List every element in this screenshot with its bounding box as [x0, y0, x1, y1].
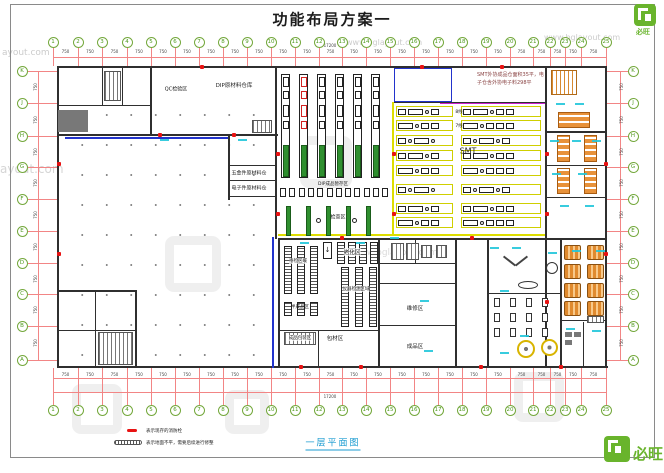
fire-hydrant-mark [276, 152, 280, 156]
fire-hydrant-mark [57, 252, 61, 256]
grid-stem-left [28, 103, 57, 104]
zone-label-dip-line: DIP成品暂存区 [318, 181, 348, 187]
dip-machine-box [337, 105, 343, 117]
fire-hydrant-mark [470, 236, 474, 240]
grid-col-bubble-bottom: 18 [457, 405, 468, 416]
stairs [104, 71, 121, 101]
smt-machine [502, 138, 510, 144]
grid-row-bubble-left: D [17, 258, 28, 269]
dim-label-top: 750 [301, 50, 313, 54]
grid-col-bubble-bottom: 12 [314, 405, 325, 416]
dim-label-top: 750 [84, 50, 96, 54]
grid-col-bubble-bottom: 3 [97, 405, 108, 416]
dim-label-bottom: 750 [372, 373, 384, 377]
grid-row-bubble-right: G [628, 162, 639, 173]
smt-line-row [396, 150, 453, 161]
test-fixture-green [366, 206, 371, 236]
storage-rack [310, 246, 318, 294]
dim-line-left [38, 71, 39, 360]
canteen-table [587, 245, 604, 260]
smt-machine [490, 154, 494, 158]
dim-label-bottom: 750 [253, 373, 265, 377]
oval-table [518, 281, 538, 289]
dip-machine-box [301, 105, 307, 117]
wall [278, 238, 607, 240]
cyan-room-label [560, 205, 569, 207]
training-desk [494, 328, 500, 337]
grid-stem-left [28, 231, 57, 232]
grid-col-bubble-top: 6 [170, 37, 181, 48]
dim-label-top: 750 [60, 50, 72, 54]
stairs [551, 70, 577, 95]
wall [487, 293, 560, 294]
fire-hydrant-mark [276, 212, 280, 216]
cyan-room-label [550, 140, 559, 142]
smt-machine [502, 187, 510, 193]
grid-col-bubble-top: 11 [290, 37, 301, 48]
fixture [565, 340, 572, 345]
dim-label-bottom: 750 [133, 373, 145, 377]
dim-label-top: 750 [181, 50, 193, 54]
grid-col-bubble-top: 8 [218, 37, 229, 48]
dip-conveyor-green [373, 145, 379, 177]
grid-col-bubble-bottom: 2 [73, 405, 84, 416]
grid-col-bubble-top: 4 [122, 37, 133, 48]
wall [57, 66, 607, 68]
dim-label-top: 750 [253, 50, 265, 54]
dim-label-bottom: 750 [420, 373, 432, 377]
smt-line-row [461, 165, 541, 176]
dim-label-top: 750 [396, 50, 408, 54]
zone-label-aging: 老化区 [344, 248, 361, 256]
dip-production-line [353, 74, 362, 178]
grid-col-bubble-top: 7 [194, 37, 205, 48]
fan-icon [541, 339, 558, 356]
grid-row-bubble-left: E [17, 226, 28, 237]
grid-col-bubble-bottom: 14 [361, 405, 372, 416]
smt-machine [398, 220, 413, 226]
dim-label-left: 750 [34, 209, 38, 221]
storage-rack [297, 246, 305, 294]
dim-label-right: 750 [620, 241, 624, 253]
smt-machine [414, 138, 429, 144]
blue-line-horizontal [65, 137, 228, 139]
grid-stem-left [28, 199, 57, 200]
dim-label-top: 750 [277, 50, 289, 54]
dip-machine-box [301, 77, 307, 87]
grid-stem-bottom [438, 368, 439, 405]
grid-stem-bottom [486, 368, 487, 405]
dip-machine-box [337, 77, 343, 87]
zone-label-inspection: 检查区 [330, 214, 345, 221]
smt-machine [431, 168, 439, 174]
wall [278, 238, 280, 368]
fixture-circle [352, 218, 357, 223]
fire-hydrant-mark [200, 65, 204, 69]
dim-label-top: 750 [325, 50, 337, 54]
grid-row-bubble-right: A [628, 355, 639, 366]
dip-machine-box [283, 121, 289, 129]
cyan-room-label [420, 300, 429, 302]
wall [378, 263, 455, 264]
grid-row-bubble-left: J [17, 98, 28, 109]
dim-label-left: 750 [34, 146, 38, 158]
zone-label-smt-line7: 7线 [455, 123, 462, 129]
dim-label-left: 750 [34, 337, 38, 349]
wall [545, 197, 606, 198]
smt-machine [431, 109, 439, 115]
dip-production-line [299, 74, 308, 178]
plan-caption: 一层平面图 [305, 436, 360, 449]
wall [228, 134, 230, 200]
cyan-room-label [575, 103, 584, 105]
smt-machine [398, 187, 406, 193]
fire-hydrant-mark [299, 365, 303, 369]
smt-machine [463, 138, 471, 144]
dim-label-left: 750 [34, 273, 38, 285]
equipment-bench [421, 245, 432, 258]
dim-label-bottom: 750 [567, 373, 579, 377]
stairs [98, 332, 133, 365]
cyan-room-label [500, 290, 509, 292]
grid-col-bubble-top: 2 [73, 37, 84, 48]
fire-hydrant-mark [559, 365, 563, 369]
test-fixture-green [346, 206, 351, 236]
grid-row-bubble-left: K [17, 66, 28, 77]
grid-stem-bottom [462, 368, 463, 405]
grid-col-bubble-top: 22 [545, 37, 556, 48]
smt-machine [506, 123, 514, 129]
smt-machine [486, 168, 494, 174]
smt-machine [463, 187, 471, 193]
smt-line-row [396, 184, 453, 195]
cyan-room-label [552, 173, 561, 175]
grid-row-bubble-left: A [17, 355, 28, 366]
grid-col-bubble-top: 25 [601, 37, 612, 48]
grid-col-bubble-top: 19 [481, 37, 492, 48]
training-desk [542, 313, 548, 322]
smt-machine [431, 153, 439, 159]
grid-stem-bottom [199, 368, 200, 405]
grid-stem-left [28, 136, 57, 137]
grid-stem-bottom [390, 368, 391, 405]
smt-machine [425, 207, 429, 211]
grid-col-bubble-top: 17 [433, 37, 444, 48]
smt-machine [473, 206, 488, 212]
cyan-room-label [390, 237, 399, 239]
dim-label-bottom: 750 [301, 373, 313, 377]
grid-stem-left [28, 360, 57, 361]
dim-label-top: 750 [444, 50, 456, 54]
smt-machine [431, 206, 439, 212]
dip-conveyor-green [283, 145, 289, 177]
zone-label-electronic-warehouse: 电子件原材料仓 [231, 185, 266, 192]
wall [545, 165, 606, 166]
storage-rack [284, 246, 292, 294]
aging-rack [370, 242, 378, 264]
wall [605, 66, 607, 368]
canteen-table [587, 301, 604, 316]
serving-table [587, 316, 604, 323]
grid-col-bubble-bottom: 20 [505, 405, 516, 416]
cyan-room-label [300, 242, 309, 244]
wall [545, 66, 547, 368]
grid-col-bubble-top: 1 [48, 37, 59, 48]
dip-machine-box [319, 105, 325, 117]
smt-line-row [461, 135, 541, 146]
grid-stem-bottom [151, 368, 152, 405]
cyan-room-label [556, 103, 565, 105]
dim-label-left: 750 [34, 114, 38, 126]
smt-note: SMT外协成品仓面积35平，电子仓含外协电子料298平 [477, 71, 547, 87]
smt-machine [408, 139, 412, 143]
wall [228, 180, 276, 181]
dim-label-top: 750 [588, 50, 600, 54]
zone-label-hardware-warehouse: 五金件原材料仓 [231, 170, 266, 177]
dip-production-line [317, 74, 326, 178]
grid-col-bubble-bottom: 8 [218, 405, 229, 416]
smt-line-row [396, 135, 453, 146]
grid-col-bubble-bottom: 21 [528, 405, 539, 416]
dim-label-bottom: 750 [109, 373, 121, 377]
grid-col-bubble-top: 12 [314, 37, 325, 48]
test-fixture-green [326, 206, 331, 236]
grid-row-bubble-left: C [17, 289, 28, 300]
dim-label-bottom: 750 [536, 373, 548, 377]
grid-col-bubble-top: 15 [385, 37, 396, 48]
smt-machine [415, 124, 419, 128]
dip-machine-box [373, 77, 379, 87]
dim-label-right: 750 [620, 273, 624, 285]
grid-col-bubble-bottom: 6 [170, 405, 181, 416]
grid-stem-bottom [53, 368, 54, 405]
fire-hydrant-mark [392, 212, 396, 216]
smt-machine [490, 110, 494, 114]
dim-label-right: 750 [620, 81, 624, 93]
smt-machine [408, 206, 423, 212]
dim-label-top: 750 [552, 50, 564, 54]
smt-line-row [461, 106, 541, 117]
zone-label-pending: 待检区域 [289, 258, 307, 264]
smt-machine [415, 221, 419, 225]
grid-stem-bottom [295, 368, 296, 405]
uneven-floor-legend-icon [114, 440, 142, 445]
canteen-table [587, 283, 604, 298]
dim-label-bottom: 750 [396, 373, 408, 377]
canteen-table [564, 264, 581, 279]
smt-machine [425, 110, 429, 114]
smt-machine [414, 187, 429, 193]
cyan-room-label [578, 173, 587, 175]
fixture [565, 332, 572, 337]
grid-stem-top [606, 47, 607, 66]
smt-machine [398, 153, 406, 159]
wall [102, 66, 103, 106]
grid-stem-bottom [78, 368, 79, 405]
grid-stem-bottom [175, 368, 176, 405]
wall [455, 238, 457, 368]
magenta-line [440, 103, 545, 104]
smt-machine [473, 188, 477, 192]
grid-col-bubble-top: 21 [528, 37, 539, 48]
smt-machine [473, 109, 488, 115]
equipment-bench [436, 245, 447, 258]
grid-stem-bottom [102, 368, 103, 405]
smt-machine [463, 206, 471, 212]
smt-machine [479, 187, 494, 193]
grid-col-bubble-bottom: 7 [194, 405, 205, 416]
smt-machine [463, 220, 478, 226]
dip-machine-box [319, 121, 325, 129]
cyan-room-label [356, 242, 365, 244]
smt-machine [398, 109, 406, 115]
grid-stem-bottom [342, 368, 343, 405]
cyan-room-label [520, 335, 529, 337]
smt-machine [486, 123, 494, 129]
smt-machine [496, 139, 500, 143]
grid-col-bubble-bottom: 25 [601, 405, 612, 416]
dim-label-top: 750 [133, 50, 145, 54]
dim-label-bottom: 750 [325, 373, 337, 377]
grid-col-bubble-top: 16 [409, 37, 420, 48]
grid-row-bubble-right: K [628, 66, 639, 77]
dim-label-top: 750 [468, 50, 480, 54]
grid-stem-bottom [565, 368, 566, 405]
wall [560, 238, 562, 368]
wall [135, 290, 137, 368]
dim-label-bottom: 750 [492, 373, 504, 377]
dip-machine-box [301, 121, 307, 129]
production-boundary-yellow-horizontal [278, 234, 545, 236]
smt-machine [506, 206, 514, 212]
wall [95, 290, 96, 368]
smt-machine [506, 168, 514, 174]
smt-machine [421, 123, 429, 129]
wall [122, 66, 123, 106]
wall [278, 330, 378, 331]
grid-col-bubble-top: 13 [337, 37, 348, 48]
zone-label-repair: 维修区 [407, 304, 424, 312]
zone-label-packing-material: 包材区 [327, 334, 344, 342]
training-desk [542, 328, 548, 337]
dim-label-bottom: 750 [516, 373, 528, 377]
grid-col-bubble-top: 20 [505, 37, 516, 48]
grid-col-bubble-bottom: 23 [560, 405, 571, 416]
smt-machine [425, 154, 429, 158]
smt-line-row [396, 217, 453, 228]
grid-col-bubble-bottom: 19 [481, 405, 492, 416]
legend-item-uneven-floor: 表示地面不平，需要后续进行修整 [146, 440, 214, 446]
grid-row-bubble-right: D [628, 258, 639, 269]
dim-label-bottom: 750 [588, 373, 600, 377]
smt-line-row [461, 217, 541, 228]
dip-machine-box [355, 91, 361, 99]
dim-label-bottom: 750 [277, 373, 289, 377]
grid-row-bubble-right: B [628, 321, 639, 332]
dip-machine-box [355, 105, 361, 117]
training-desk [494, 313, 500, 322]
smt-machine [408, 109, 423, 115]
dim-label-top: 750 [157, 50, 169, 54]
smt-line-row [396, 203, 453, 214]
fire-hydrant-mark [604, 252, 608, 256]
dim-label-right: 750 [620, 114, 624, 126]
grid-stem-bottom [271, 368, 272, 405]
dip-conveyor-green [319, 145, 325, 177]
smt-machine [490, 207, 494, 211]
smt-machine [480, 169, 484, 173]
cyan-room-label [238, 139, 247, 141]
training-desk [510, 313, 516, 322]
smt-line-row [396, 106, 453, 117]
canteen-table [564, 301, 581, 316]
test-fixture-green [286, 206, 291, 236]
fire-hydrant-legend-icon [127, 429, 137, 432]
smt-line-row [461, 203, 541, 214]
grid-row-bubble-right: J [628, 98, 639, 109]
wall [378, 283, 455, 284]
wall [57, 290, 137, 292]
grid-stem-bottom [414, 368, 415, 405]
grid-row-bubble-left: F [17, 194, 28, 205]
smt-machine [506, 153, 514, 159]
dip-machine-box [301, 91, 307, 99]
dim-label-right: 750 [620, 337, 624, 349]
smt-machine [480, 124, 484, 128]
dip-conveyor-green [301, 145, 307, 177]
brand-name: 必旺 [636, 27, 650, 37]
wall [57, 366, 608, 368]
dim-label-right: 750 [620, 304, 624, 316]
smt-machine [496, 168, 504, 174]
smt-machine [463, 168, 478, 174]
dip-conveyor-green [337, 145, 343, 177]
wall [57, 330, 137, 331]
smt-machine [421, 220, 429, 226]
dim-line-top [53, 57, 606, 58]
dim-line-bottom [53, 378, 606, 379]
grid-row-bubble-right: C [628, 289, 639, 300]
fire-hydrant-mark [604, 162, 608, 166]
dip-conveyor-green [355, 145, 361, 177]
storage-rack [355, 267, 363, 327]
grid-row-bubble-left: H [17, 131, 28, 142]
cyan-room-label [572, 250, 581, 252]
grid-stem-bottom [319, 368, 320, 405]
wall [57, 105, 151, 106]
grid-col-bubble-top: 3 [97, 37, 108, 48]
dim-label-bottom: 750 [205, 373, 217, 377]
dip-machine-box [319, 91, 325, 99]
canteen-table [564, 283, 581, 298]
dip-machine-box [373, 121, 379, 129]
wall [545, 131, 606, 133]
test-fixture-green [306, 206, 311, 236]
smt-machine [431, 220, 439, 226]
grid-row-bubble-right: H [628, 131, 639, 142]
smt-machine [496, 123, 504, 129]
cyan-room-label [585, 205, 594, 207]
dim-label-left: 750 [34, 241, 38, 253]
wall [228, 196, 276, 197]
fire-hydrant-mark [545, 300, 549, 304]
smt-machine [496, 153, 504, 159]
brand-logo-icon [604, 436, 630, 462]
smt-line-row [396, 165, 453, 176]
smt-machine [463, 109, 471, 115]
grid-row-bubble-right: F [628, 194, 639, 205]
zone-label-smt-line8: 8线 [455, 109, 462, 115]
